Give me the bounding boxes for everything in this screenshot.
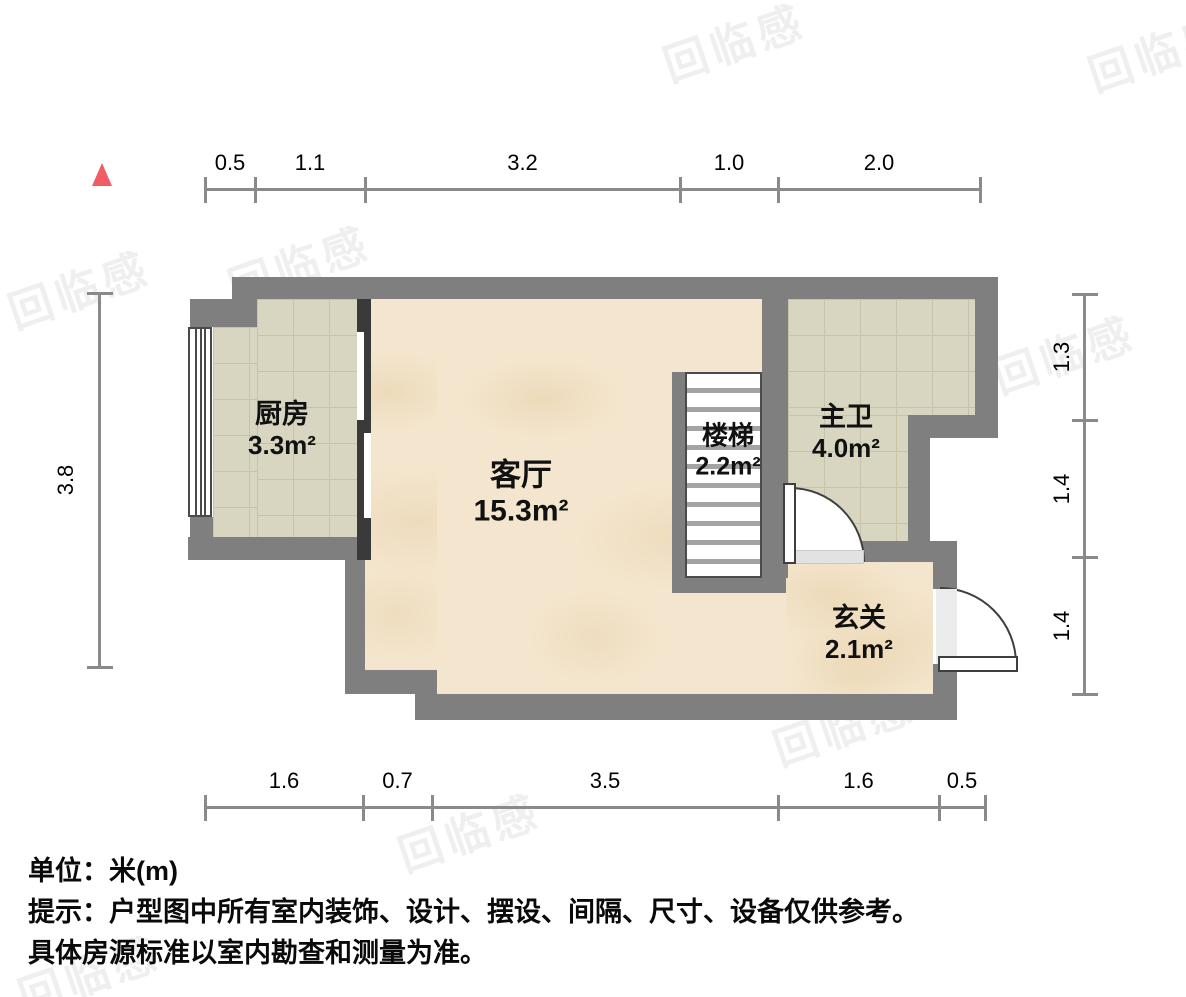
disclaimer-notes: 单位：米(m) 提示：户型图中所有室内装饰、设计、摆设、间隔、尺寸、设备仅供参考… [28,851,919,974]
room-label-stairs: 楼梯2.2m² [695,420,760,481]
room-area-bathroom: 4.0m² [812,434,880,465]
floorplan-canvas: 回临感回临感回临感回临感回临感回临感回临感回临感 0.51.13.21.02.0… [0,0,1186,997]
room-area-living: 15.3m² [473,494,568,530]
door-arcs [0,0,1186,997]
tip-note-line2: 具体房源标准以室内勘查和测量为准。 [28,933,919,974]
bathroom-door-leaf [783,483,796,564]
room-label-kitchen: 厨房3.3m² [248,398,316,462]
room-name-stairs: 楼梯 [702,420,754,451]
room-area-kitchen: 3.3m² [248,431,316,462]
entry-door-sill [936,589,957,664]
room-name-bathroom: 主卫 [819,401,873,433]
room-name-kitchen: 厨房 [255,398,309,430]
tip-note-line1: 提示：户型图中所有室内装饰、设计、摆设、间隔、尺寸、设备仅供参考。 [28,892,919,933]
room-name-living: 客厅 [490,456,552,493]
room-label-entry: 玄关2.1m² [825,602,893,666]
entry-door-leaf [938,656,1018,672]
room-label-bathroom: 主卫4.0m² [812,401,880,465]
bathroom-threshold [786,550,864,564]
unit-note: 单位：米(m) [28,851,919,892]
room-label-living: 客厅15.3m² [473,456,568,529]
room-name-entry: 玄关 [832,602,886,634]
room-area-stairs: 2.2m² [695,452,760,482]
room-area-entry: 2.1m² [825,635,893,666]
